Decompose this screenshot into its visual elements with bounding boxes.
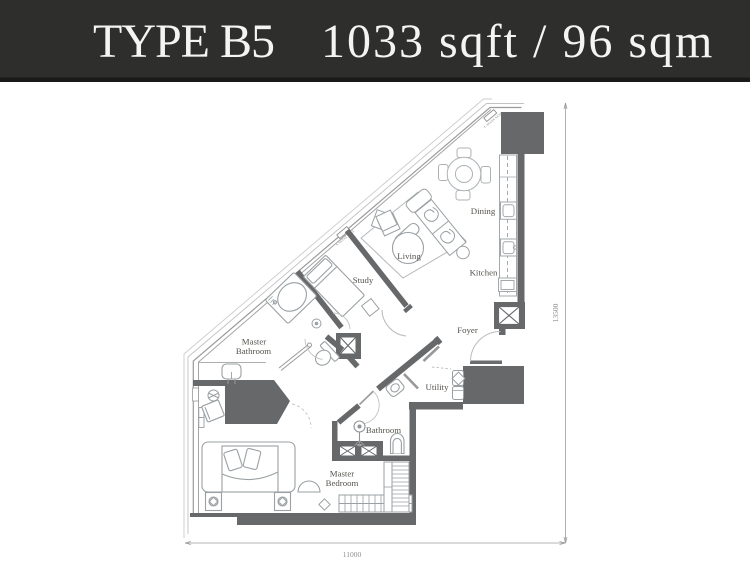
svg-text:Master: Master [242,337,266,347]
svg-text:Master: Master [330,469,354,479]
svg-text:11000: 11000 [343,550,362,559]
svg-text:13500: 13500 [551,303,560,322]
svg-text:Bedroom: Bedroom [326,478,359,488]
svg-text:Foyer: Foyer [457,325,478,335]
svg-text:Utility: Utility [426,382,450,392]
svg-text:Living: Living [397,251,421,261]
svg-text:Kitchen: Kitchen [470,268,498,278]
svg-text:1033 sqft / 96 sqm: 1033 sqft / 96 sqm [321,15,714,68]
svg-text:Study: Study [353,275,374,285]
svg-text:Bathroom: Bathroom [236,346,271,356]
svg-text:Dining: Dining [471,206,496,216]
svg-text:Bathroom: Bathroom [366,425,401,435]
svg-text:TYPE B5: TYPE B5 [93,15,274,68]
